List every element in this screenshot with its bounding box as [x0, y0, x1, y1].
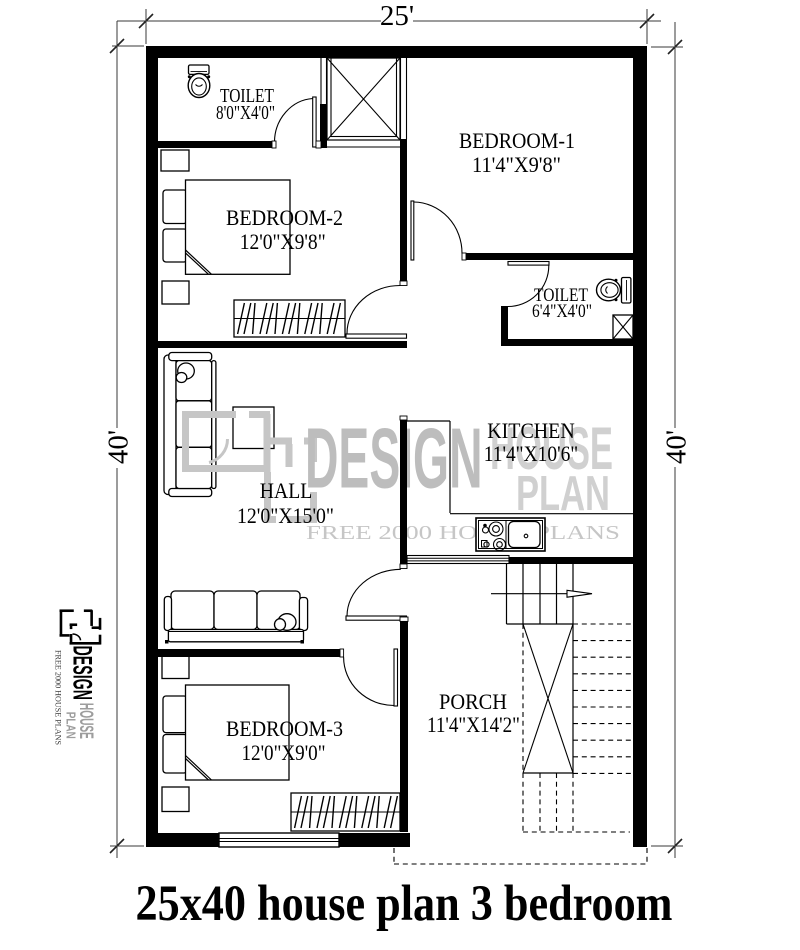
svg-text:8'0"X4'0": 8'0"X4'0" — [216, 103, 275, 124]
svg-text:BEDROOM-3: BEDROOM-3 — [226, 716, 343, 741]
svg-text:40': 40' — [103, 430, 135, 464]
svg-text:PORCH: PORCH — [439, 689, 507, 714]
svg-text:12'0"X9'0": 12'0"X9'0" — [242, 740, 326, 765]
svg-text:HALL: HALL — [260, 478, 313, 503]
svg-text:11'4"X14'2": 11'4"X14'2" — [427, 712, 520, 737]
svg-text:40': 40' — [661, 430, 693, 464]
svg-text:FREE 2000 HOUSE PLANS: FREE 2000 HOUSE PLANS — [306, 522, 620, 544]
svg-text:PLAN: PLAN — [516, 467, 610, 521]
svg-text:12'0"X15'0": 12'0"X15'0" — [237, 503, 334, 528]
svg-text:6'4"X4'0": 6'4"X4'0" — [532, 301, 592, 322]
svg-text:PLAN: PLAN — [64, 712, 79, 739]
svg-text:25': 25' — [380, 0, 414, 32]
svg-text:KITCHEN: KITCHEN — [487, 418, 575, 443]
svg-text:11'4"X10'6": 11'4"X10'6" — [484, 441, 579, 466]
svg-text:DESIGN: DESIGN — [305, 412, 483, 507]
svg-text:BEDROOM-2: BEDROOM-2 — [226, 205, 343, 230]
svg-text:BEDROOM-1: BEDROOM-1 — [459, 128, 575, 153]
svg-text:FREE 2000 HOUSE PLANS: FREE 2000 HOUSE PLANS — [54, 650, 63, 745]
svg-text:12'0"X9'8": 12'0"X9'8" — [240, 229, 326, 254]
svg-text:DESIGN: DESIGN — [68, 646, 98, 701]
svg-text:25x40 house plan 3 bedroom: 25x40 house plan 3 bedroom — [136, 876, 673, 932]
svg-text:11'4"X9'8": 11'4"X9'8" — [472, 152, 561, 177]
